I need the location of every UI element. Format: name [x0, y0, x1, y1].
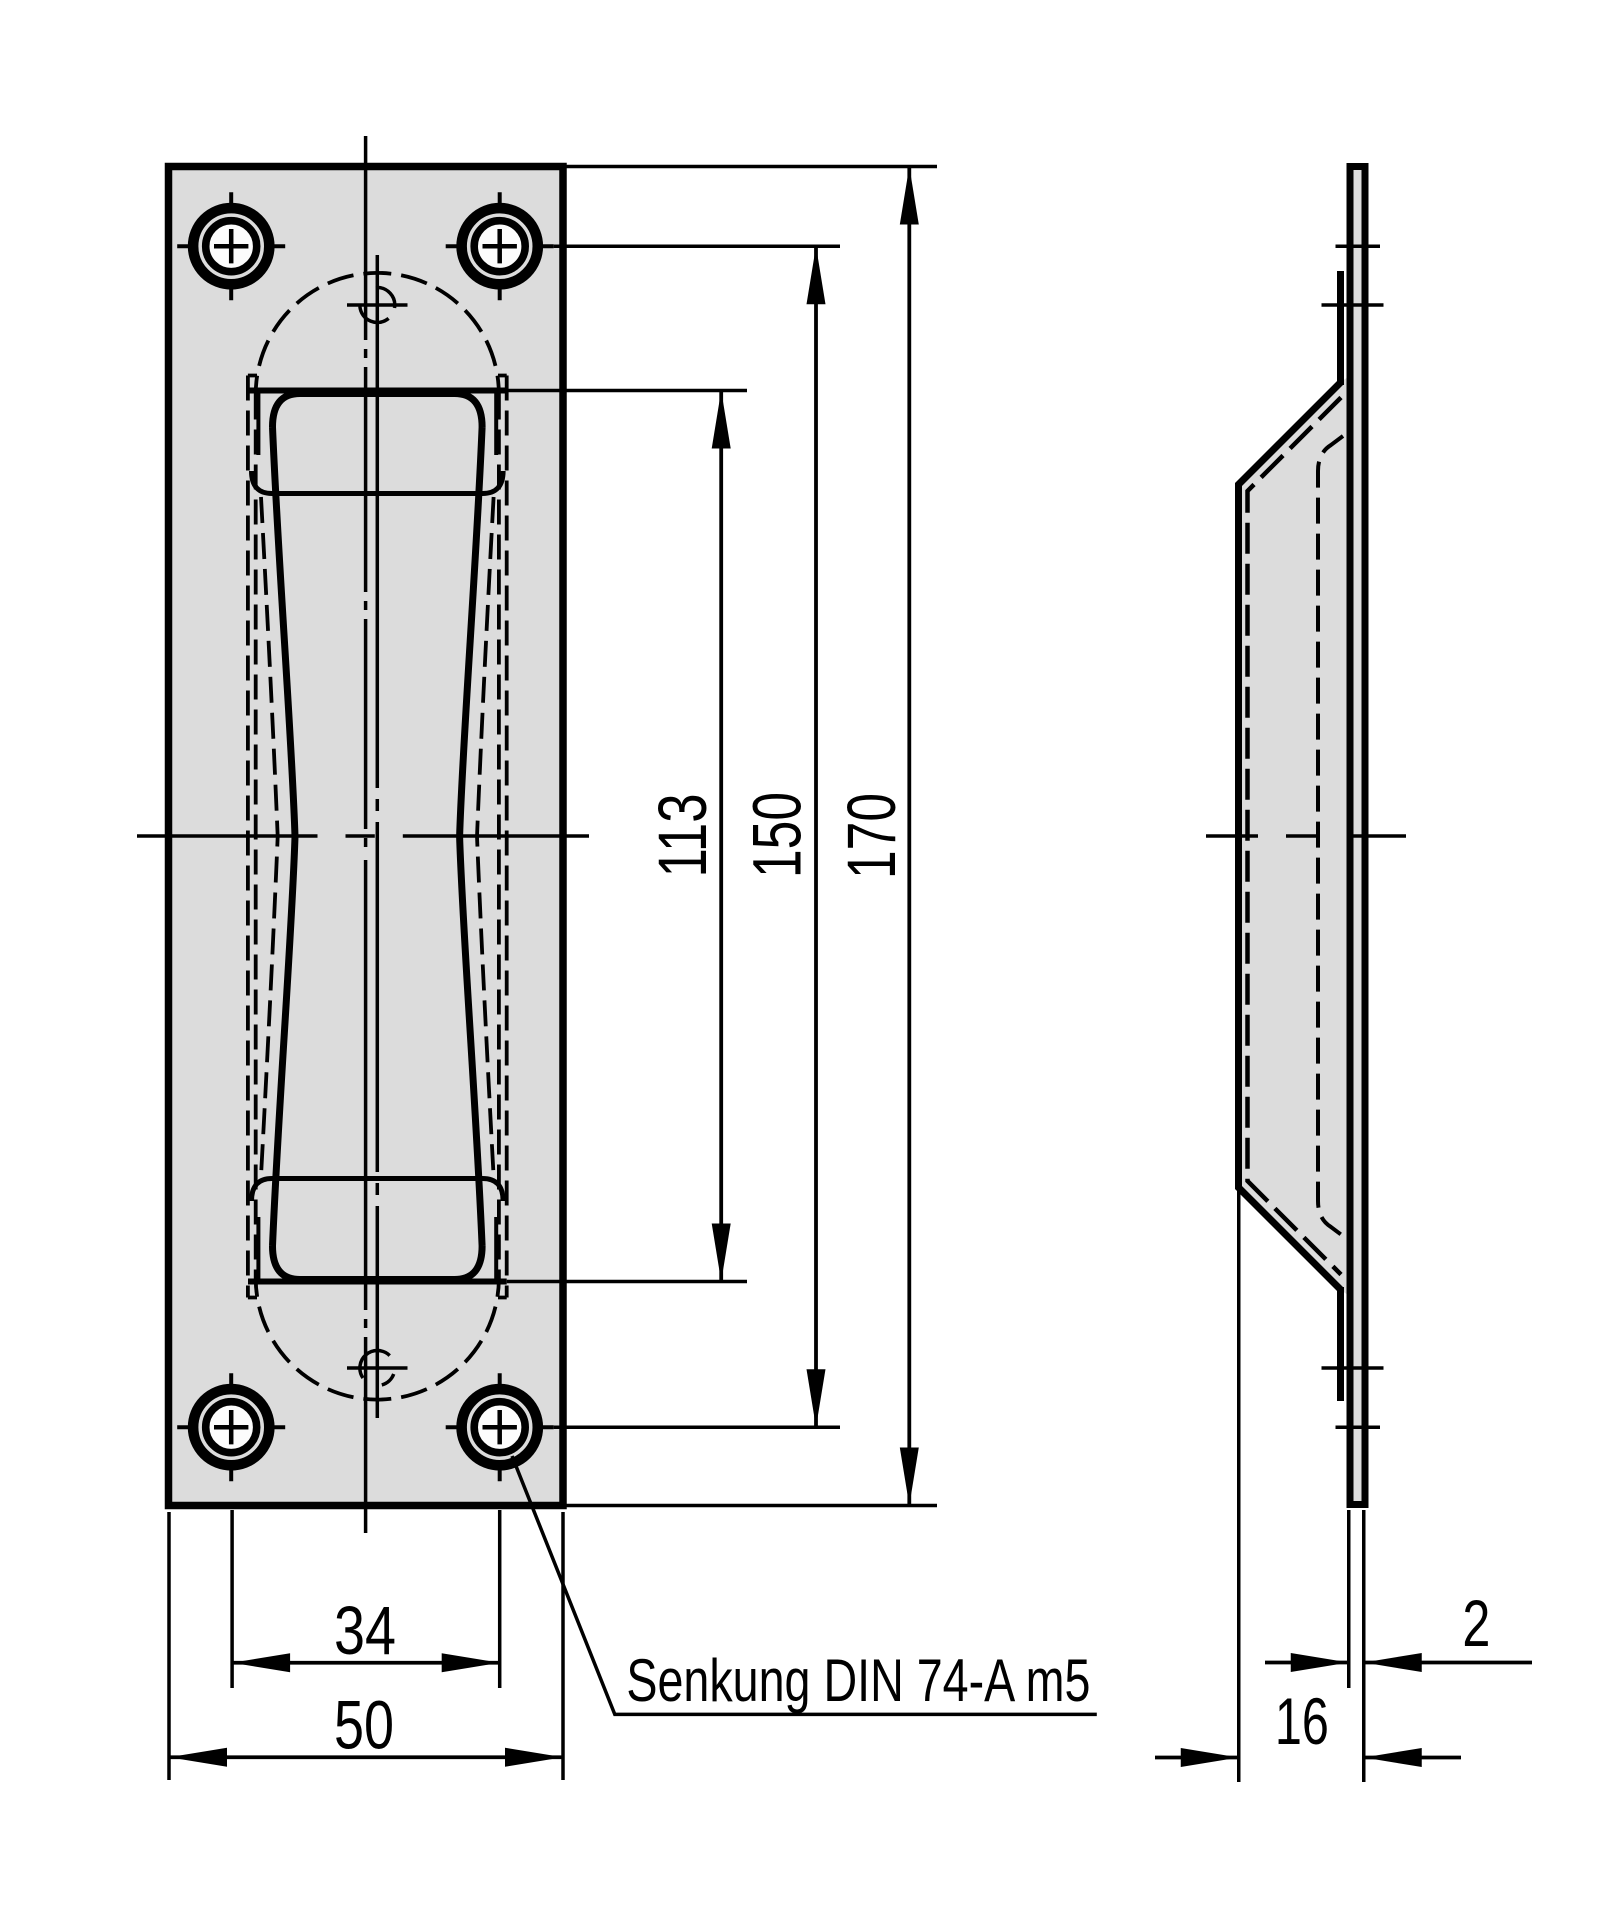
svg-text:34: 34 [334, 1592, 396, 1669]
svg-text:113: 113 [644, 794, 721, 878]
svg-text:2: 2 [1462, 1586, 1490, 1660]
svg-text:Senkung DIN 74-A m5: Senkung DIN 74-A m5 [626, 1647, 1090, 1714]
svg-text:50: 50 [334, 1687, 394, 1764]
svg-text:150: 150 [739, 792, 816, 878]
svg-text:170: 170 [833, 793, 910, 879]
svg-text:16: 16 [1275, 1684, 1329, 1758]
